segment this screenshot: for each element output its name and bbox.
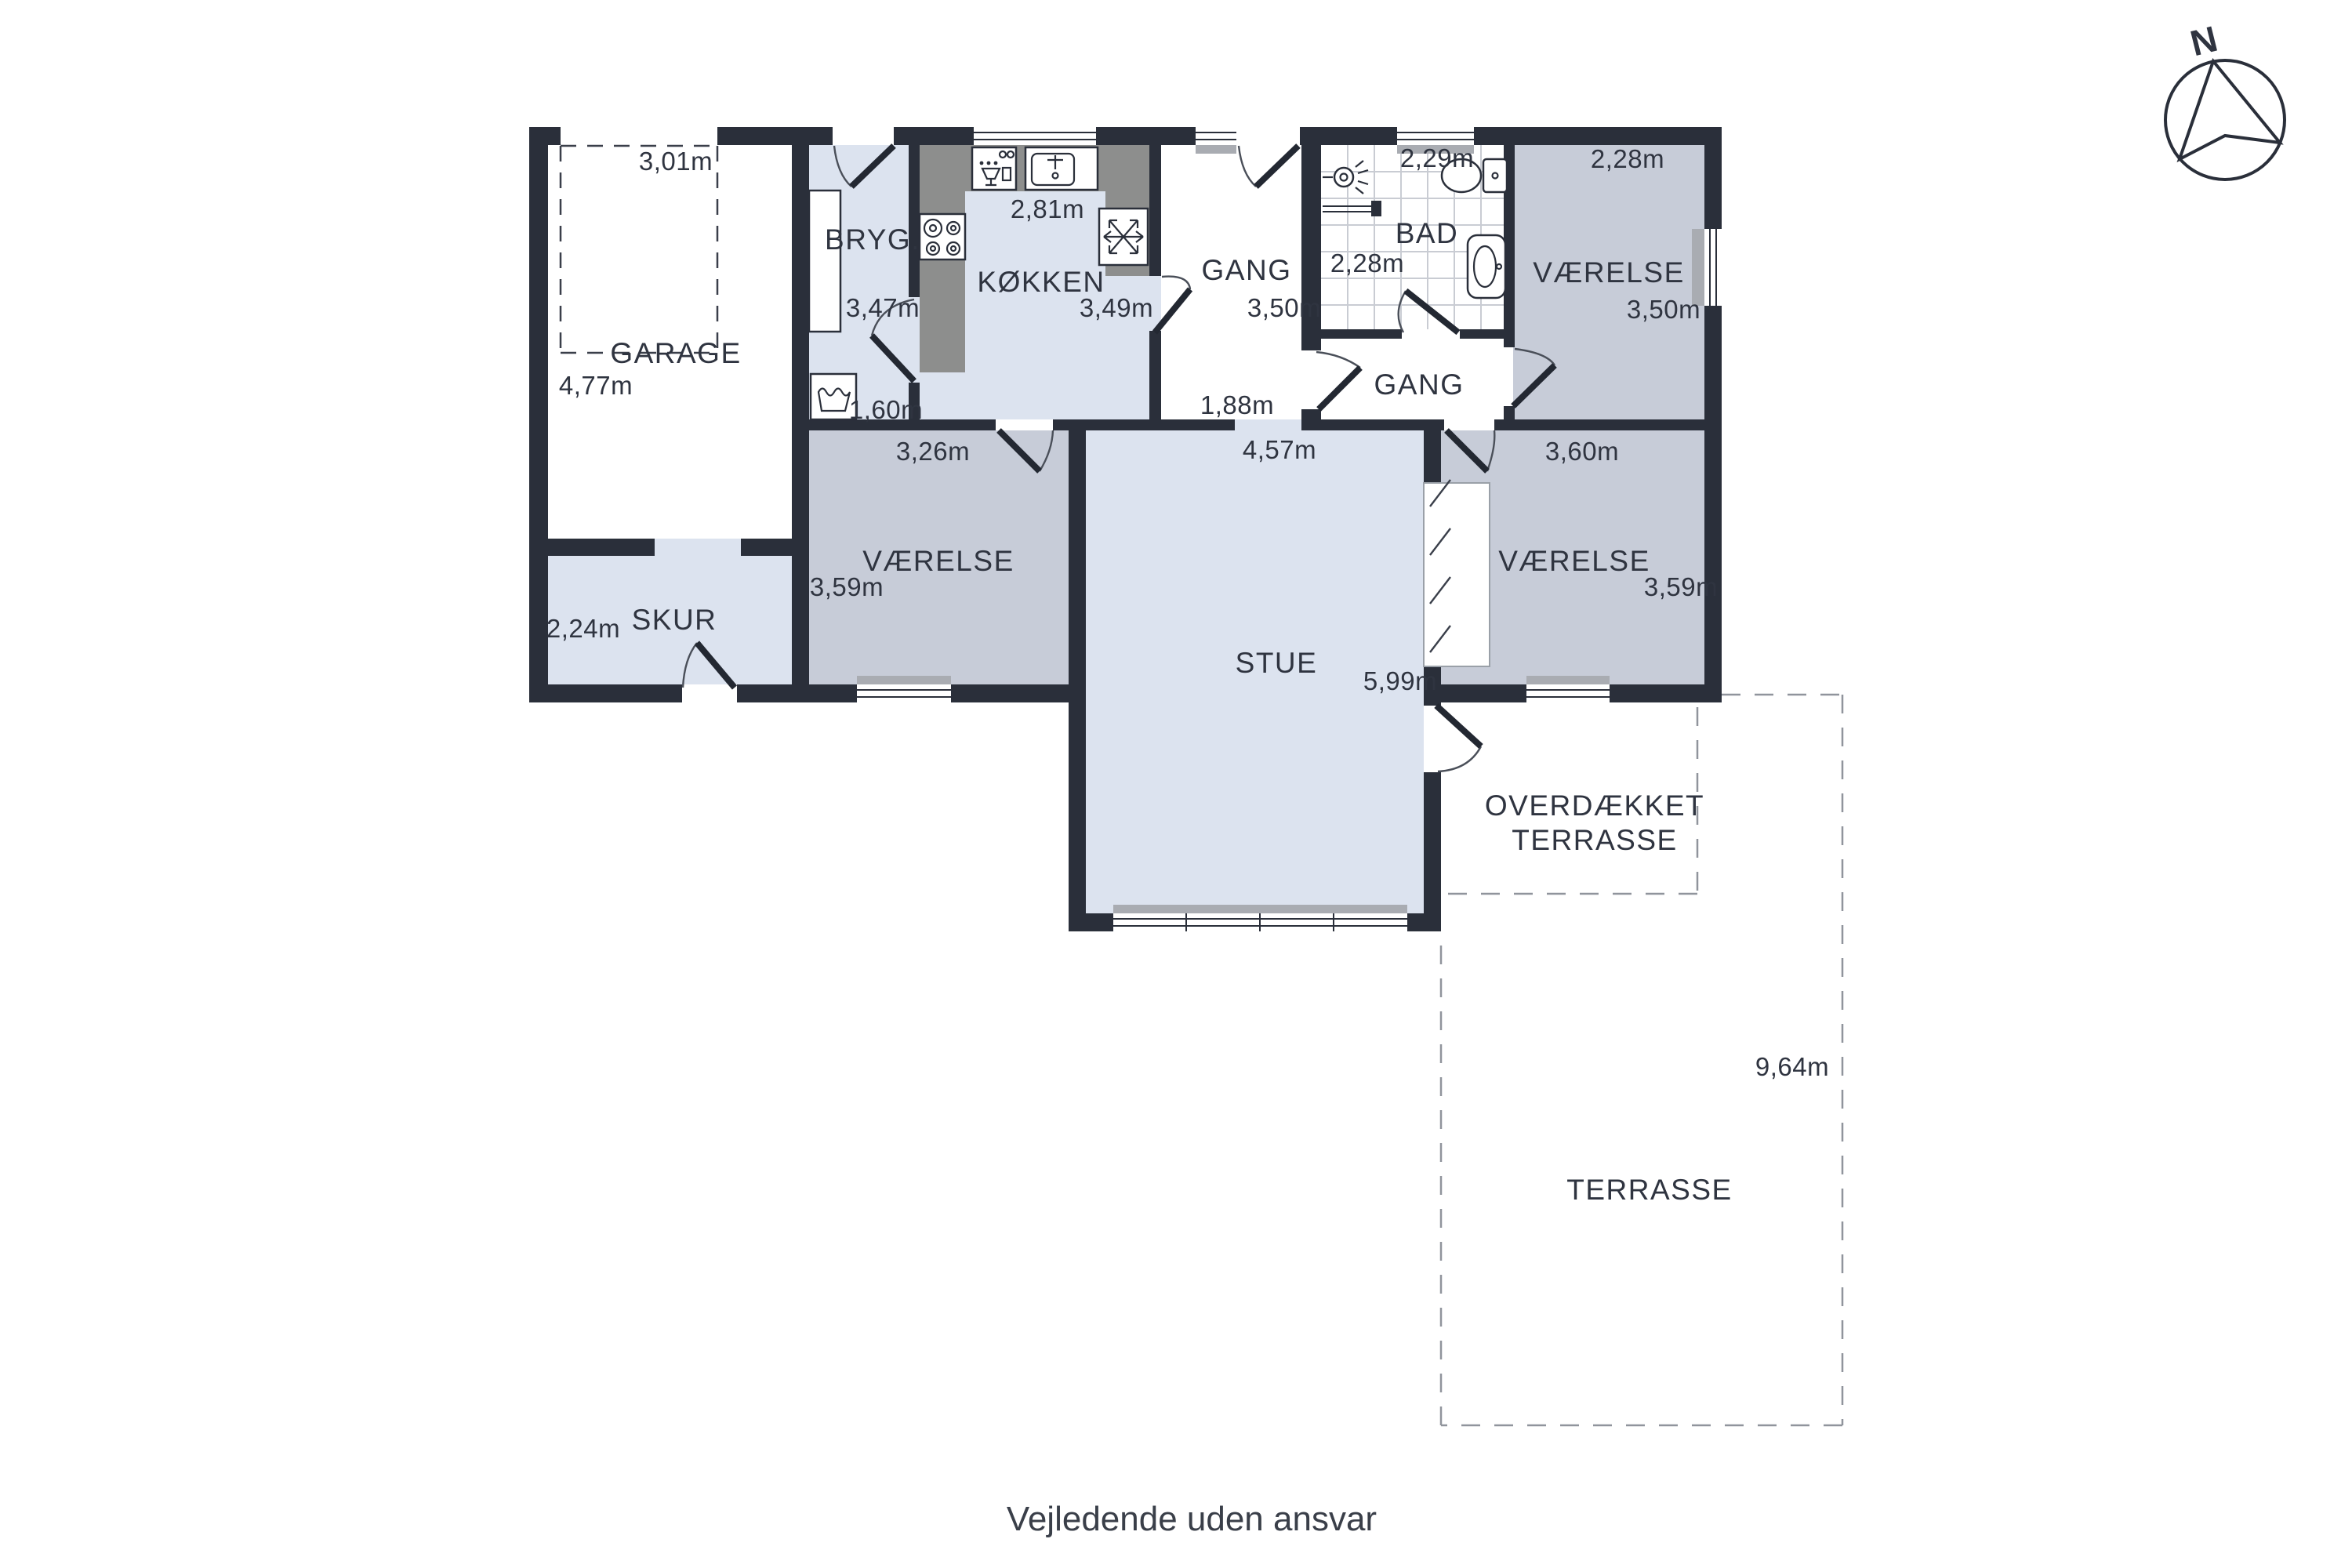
stue-window: [1113, 905, 1407, 931]
dim-gang-width: 1,88m: [1200, 390, 1274, 419]
skur-garage-opening: [655, 539, 741, 556]
room-label-vaerelse-syd: VÆRELSE: [1498, 545, 1650, 577]
wall-segment: [1704, 306, 1722, 702]
wall-segment: [894, 127, 974, 145]
dim-stue-width: 4,57m: [1243, 435, 1316, 464]
kitchen-sink-icon: [1025, 147, 1098, 190]
vaerelse-syd-window: [1526, 676, 1610, 702]
wall-segment: [1300, 127, 1397, 145]
dim-gang-depth: 3,50m: [1247, 293, 1321, 322]
room-label-overdaekket-line2: TERRASSE: [1512, 824, 1677, 856]
wall-segment: [1149, 331, 1161, 430]
dim-bryggers-width: 1,60m: [849, 395, 923, 424]
dim-garage-width: 3,01m: [639, 147, 713, 176]
vaerelse-vest-window: [857, 676, 951, 702]
room-label-overdaekket-line1: OVERDÆKKET: [1485, 789, 1704, 822]
dim-bad-width: 2,29m: [1400, 143, 1474, 172]
gang-window: [1196, 127, 1236, 154]
wall-segment: [1096, 127, 1196, 145]
wall-segment: [951, 684, 1086, 702]
dim-vaerelse-syd-depth: 3,59m: [1644, 572, 1718, 601]
wardrobe-icon: [1424, 480, 1490, 666]
dishwasher-icon: [972, 147, 1016, 190]
wall-segment: [792, 127, 809, 702]
entrance-door: [1239, 146, 1298, 187]
garage-door-outline: [561, 146, 717, 353]
wall-segment: [1494, 419, 1704, 430]
floor-plan-page: GARAGE 3,01m 4,77m SKUR 2,24m BRYG. 3,47…: [0, 0, 2352, 1568]
wall-segment: [1504, 406, 1515, 430]
room-label-garage: GARAGE: [610, 337, 741, 369]
wall-segment: [529, 127, 548, 702]
dim-garage-depth: 4,77m: [559, 371, 633, 400]
bathroom-sink-icon: [1468, 235, 1505, 298]
gang-gang-door: [1316, 352, 1360, 409]
room-label-stue: STUE: [1236, 647, 1318, 679]
room-label-terrasse: TERRASSE: [1566, 1174, 1732, 1206]
wall-segment: [529, 684, 682, 702]
dim-bryggers-depth: 3,47m: [846, 293, 920, 322]
room-label-vaerelse-nordoest: VÆRELSE: [1533, 256, 1685, 289]
wall-segment: [1424, 772, 1441, 931]
dim-terrasse-depth: 9,64m: [1755, 1052, 1829, 1081]
wall-segment: [1474, 127, 1722, 145]
compass-rose-icon: N: [2165, 18, 2285, 180]
compass-north-label: N: [2187, 18, 2222, 64]
wall-segment: [717, 127, 833, 145]
stove-icon: [920, 214, 965, 260]
room-label-bryggers: BRYG.: [825, 223, 920, 256]
room-label-gang-entre: GANG: [1202, 254, 1292, 286]
wall-segment: [1301, 409, 1321, 430]
wall-segment: [1704, 127, 1722, 229]
wall-segment: [1321, 329, 1402, 339]
room-label-skur: SKUR: [632, 604, 717, 636]
dim-vaerelse-syd-width: 3,60m: [1545, 437, 1619, 466]
koekken-window: [974, 127, 1096, 145]
wall-segment: [1149, 145, 1161, 276]
dim-skur-width: 2,24m: [546, 614, 620, 643]
room-label-bad: BAD: [1396, 217, 1459, 249]
dim-vaerelse-vest-width: 3,26m: [896, 437, 970, 466]
dim-bad-depth: 2,28m: [1330, 249, 1404, 278]
dim-vaerelse-nordoest-width: 2,28m: [1591, 144, 1664, 173]
wall-segment: [1441, 684, 1526, 702]
freezer-snowflake-icon: [1099, 209, 1148, 265]
dim-stue-depth: 5,99m: [1363, 666, 1437, 695]
room-label-gang-fordeler: GANG: [1374, 368, 1465, 401]
stue-gang-opening: [1235, 419, 1312, 430]
disclaimer-text: Vejledende uden ansvar: [1007, 1500, 1377, 1538]
dim-koekken-width: 2,81m: [1011, 194, 1084, 223]
wall-segment: [1069, 419, 1086, 931]
floor-plan-canvas: GARAGE 3,01m 4,77m SKUR 2,24m BRYG. 3,47…: [0, 0, 2352, 1568]
wall-segment: [1460, 329, 1504, 339]
wall-segment: [909, 145, 920, 297]
wall-segment: [1086, 913, 1113, 931]
bryggers-counter: [809, 191, 840, 332]
dim-vaerelse-vest-depth: 3,59m: [810, 572, 884, 601]
wall-segment: [1424, 419, 1441, 483]
terrasse-door: [1436, 706, 1481, 771]
dim-koekken-depth: 3,49m: [1080, 293, 1153, 322]
dim-vaerelse-nordoest-depth: 3,50m: [1627, 295, 1700, 324]
room-label-vaerelse-vest: VÆRELSE: [862, 545, 1014, 577]
